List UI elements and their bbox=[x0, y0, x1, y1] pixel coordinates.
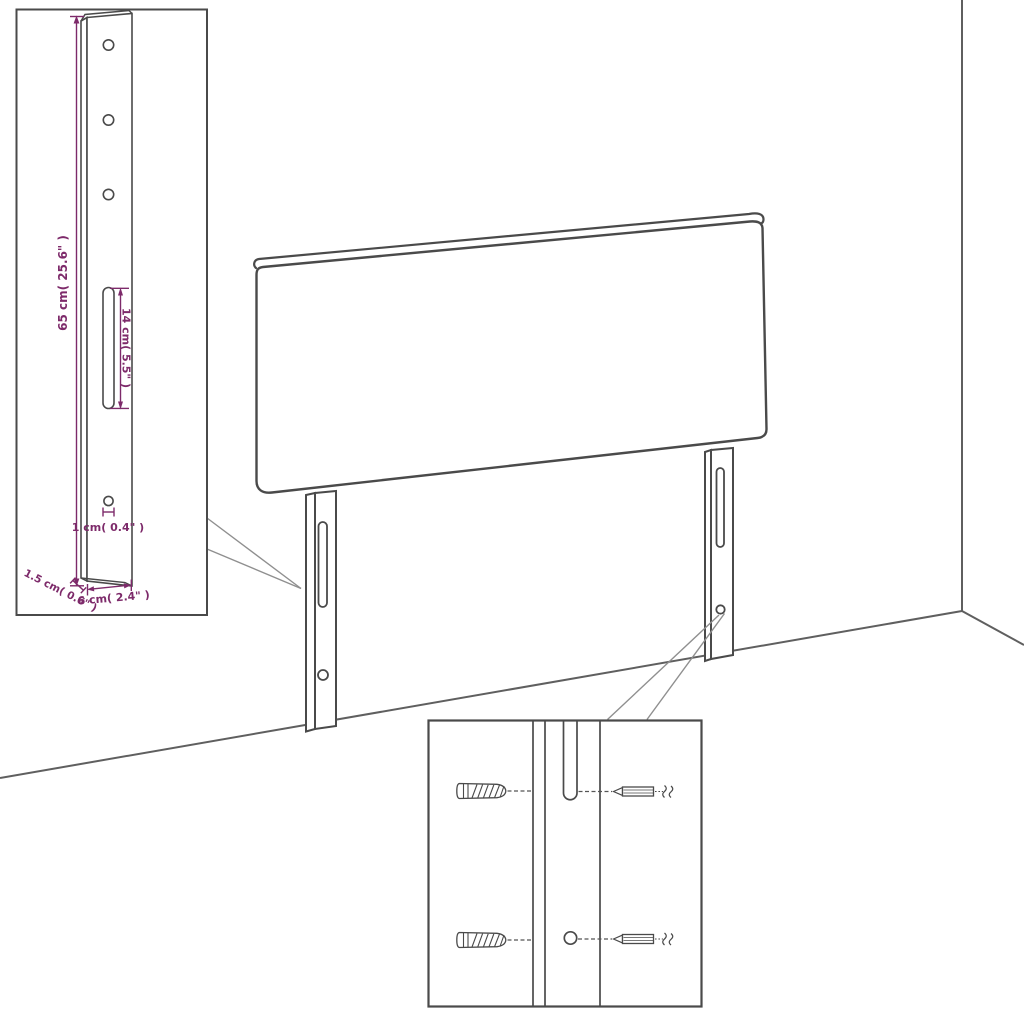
right-leg-bolt-hole bbox=[716, 605, 724, 613]
screw-shank bbox=[623, 935, 654, 944]
callout-line bbox=[207, 518, 301, 589]
left-inset-callout-lines bbox=[207, 518, 301, 589]
wall-plug bbox=[457, 933, 506, 948]
bracket-slot bbox=[103, 288, 114, 409]
right-leg-slot bbox=[717, 468, 725, 547]
callout-line bbox=[608, 615, 720, 720]
callout-line bbox=[647, 614, 725, 720]
inset-frame bbox=[429, 721, 702, 1007]
wall-plug-body bbox=[457, 784, 506, 799]
headboard-assembly-diagram: 65 cm( 25.6" ) 14 cm( 5.5" ) 1 cm( 0.4" … bbox=[0, 0, 1024, 1024]
headboard-right-leg bbox=[705, 448, 733, 661]
hole-dimension-label: 1 cm( 0.4" ) bbox=[72, 521, 144, 534]
mounting-bracket-side-view bbox=[81, 11, 132, 587]
headboard-left-leg bbox=[306, 491, 336, 732]
bracket-screw-hole-1 bbox=[103, 40, 113, 50]
bracket-screw-hole-2 bbox=[103, 115, 113, 125]
left-leg-slot bbox=[319, 522, 328, 607]
slot-dimension-label: 14 cm( 5.5" ) bbox=[120, 308, 133, 388]
floor-line-right bbox=[962, 611, 1024, 645]
wall-plug-body bbox=[457, 933, 506, 948]
left-leg-side-face bbox=[306, 493, 315, 732]
headboard bbox=[254, 213, 766, 731]
wall-plug bbox=[457, 784, 506, 799]
mounting-detail-inset bbox=[429, 721, 702, 1007]
screw-shank bbox=[623, 787, 654, 796]
strip-bolt-hole bbox=[564, 932, 576, 944]
callout-line bbox=[207, 549, 301, 589]
bracket-small-hole bbox=[104, 496, 113, 505]
headboard-panel bbox=[257, 221, 767, 492]
height-dimension-label: 65 cm( 25.6" ) bbox=[56, 235, 70, 331]
left-leg-bolt-hole bbox=[318, 670, 328, 680]
bracket-side-face bbox=[81, 18, 87, 582]
diagram-canvas: 65 cm( 25.6" ) 14 cm( 5.5" ) 1 cm( 0.4" … bbox=[0, 0, 1024, 1024]
bracket-screw-hole-3 bbox=[103, 189, 113, 199]
leg-detail-inset: 65 cm( 25.6" ) 14 cm( 5.5" ) 1 cm( 0.4" … bbox=[17, 10, 208, 616]
